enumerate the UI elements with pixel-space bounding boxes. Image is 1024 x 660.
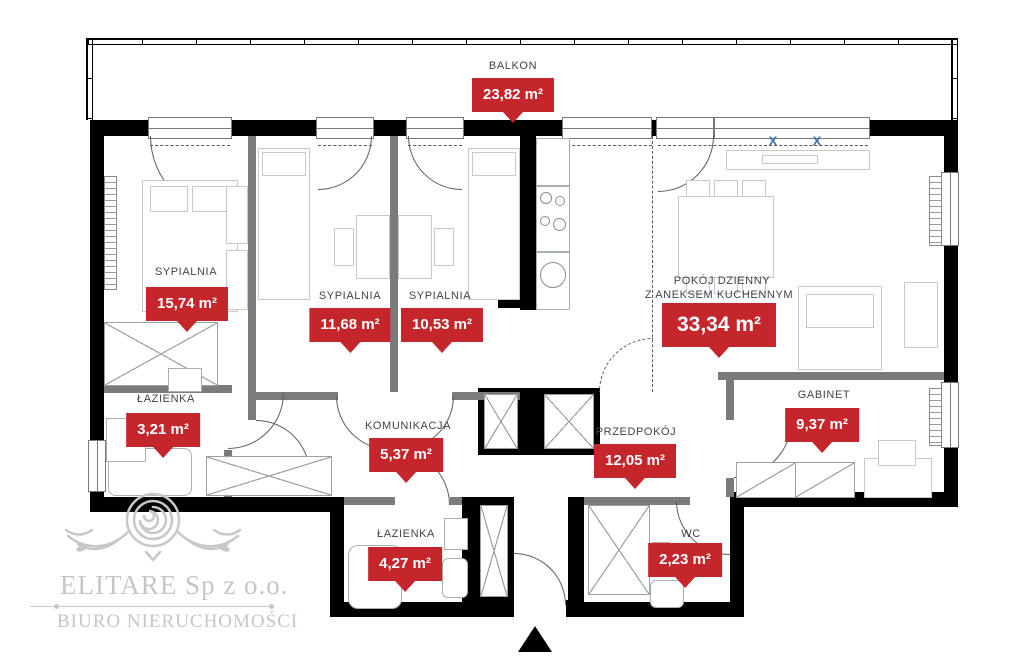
burner-icon: [553, 218, 566, 231]
pillow-icon: [262, 152, 306, 176]
room-label-gabinet: GABINET: [798, 389, 851, 401]
pillow-icon: [192, 186, 230, 212]
kitchen-counter-icon: [536, 138, 570, 186]
window-right-living: [941, 172, 959, 246]
pillow-icon: [472, 152, 516, 176]
entrance-door-leaf: [512, 553, 514, 605]
balcony-railing-top: [88, 38, 958, 45]
floor-plan: X X: [0, 0, 1024, 660]
window-right-gabinet: [941, 382, 959, 448]
door-arc-entrance: [514, 553, 566, 605]
living-window: [714, 117, 870, 139]
area-badge-sypialnia-2: 11,68 m²: [309, 308, 390, 342]
wall-bath2-top-a: [344, 497, 395, 505]
burner-icon: [540, 216, 550, 226]
burner-icon: [555, 196, 565, 206]
radiator-icon: [929, 388, 942, 446]
wall-gabinet-left-a: [726, 380, 734, 420]
room-label-sypialnia-1: SYPIALNIA: [155, 266, 217, 278]
radiator-icon: [929, 176, 942, 246]
sideboard-detail: [762, 155, 818, 164]
wall-step-left: [330, 497, 344, 617]
watermark-ornament-icon: [58, 486, 248, 574]
wall-wc-right: [730, 497, 744, 617]
wall-wc-top: [584, 497, 690, 505]
wardrobe-icon: [795, 462, 855, 498]
area-badge-pokoj-dzienny: 33,34 m²: [662, 303, 776, 347]
area-badge-przedpokoj: 12,05 m²: [594, 444, 676, 478]
dining-table-icon: [678, 196, 774, 278]
door-arc-bedroom3-balcony: [408, 136, 462, 190]
pillow-icon: [150, 186, 188, 212]
room-label-sypialnia-3: SYPIALNIA: [409, 290, 471, 302]
watermark-divider: [30, 606, 274, 607]
burner-icon: [540, 192, 552, 204]
chair-icon: [434, 228, 454, 266]
window-left-bath1: [88, 440, 106, 492]
area-badge-lazienka-2: 4,27 m²: [368, 547, 442, 581]
area-badge-sypialnia-1: 15,74 m²: [146, 287, 228, 321]
sofa-cushion: [806, 294, 874, 328]
wall-gabinet-left-b: [726, 478, 734, 497]
room-label-balkon: BALKON: [489, 60, 537, 72]
area-badge-balkon: 23,82 m²: [472, 78, 554, 112]
balcony-railing-right: [951, 38, 958, 120]
room-label-pokoj-dzienny-sub: Z ANEKSEM KUCHENNYM: [645, 289, 793, 301]
area-badge-komunikacja: 5,37 m²: [369, 438, 443, 472]
area-badge-sypialnia-3: 10,53 m²: [401, 308, 483, 342]
wall-wc-left: [568, 497, 584, 617]
radiator-icon: [104, 176, 117, 290]
shaft-icon: [544, 394, 594, 449]
shaft-icon: [480, 505, 508, 597]
wall-bedroom1-right: [248, 136, 256, 420]
window-opening-mark-2: X: [813, 134, 822, 149]
chair-icon: [878, 440, 916, 466]
threshold-dash-4: [562, 145, 652, 146]
area-badge-gabinet: 9,37 m²: [785, 408, 859, 442]
shaft-icon: [484, 394, 518, 449]
chair-icon: [334, 228, 354, 266]
room-label-sypialnia-2: SYPIALNIA: [319, 290, 381, 302]
watermark-tagline: BIURO NIERUCHOMOŚCI: [57, 611, 298, 633]
room-label-komunikacja: KOMUNIKACJA: [365, 420, 451, 432]
entrance-arrow: [518, 626, 552, 652]
wall-bedroom2-3: [390, 136, 398, 392]
entrance-jamb-right: [566, 600, 572, 617]
room-label-przedpokoj: PRZEDPOKÓJ: [596, 426, 677, 438]
wardrobe-icon: [736, 462, 796, 498]
window-opening-mark-1: X: [769, 134, 778, 149]
balcony-railing-left: [86, 38, 93, 120]
toilet-icon: [442, 558, 468, 598]
desk-icon: [356, 215, 390, 279]
watermark-company: ELITARE Sp z o.o.: [60, 570, 289, 601]
room-label-wc: WC: [681, 528, 701, 540]
wall-bath2-top-b: [450, 497, 462, 505]
washbasin-icon: [444, 518, 468, 550]
desk-icon: [398, 215, 432, 279]
kitchen-window: [562, 117, 652, 139]
room-label-lazienka-2: ŁAZIENKA: [377, 528, 435, 540]
nightstand-icon: [226, 250, 248, 310]
tv-unit-icon: [904, 282, 938, 348]
nightstand-icon: [226, 186, 248, 244]
area-badge-wc: 2,23 m²: [648, 543, 722, 577]
washbasin-icon: [168, 368, 202, 392]
opening-arc-przedpokoj: [599, 338, 653, 392]
sink-bowl-icon: [540, 262, 566, 288]
wall-gabinet-top: [718, 372, 944, 380]
room-label-lazienka-1: ŁAZIENKA: [137, 393, 195, 405]
room-label-pokoj-dzienny: POKÓJ DZIENNY: [674, 275, 770, 287]
wardrobe-icon: [588, 505, 650, 595]
door-arc-bedroom2-balcony: [318, 136, 372, 190]
area-badge-lazienka-1: 3,21 m²: [126, 413, 200, 447]
